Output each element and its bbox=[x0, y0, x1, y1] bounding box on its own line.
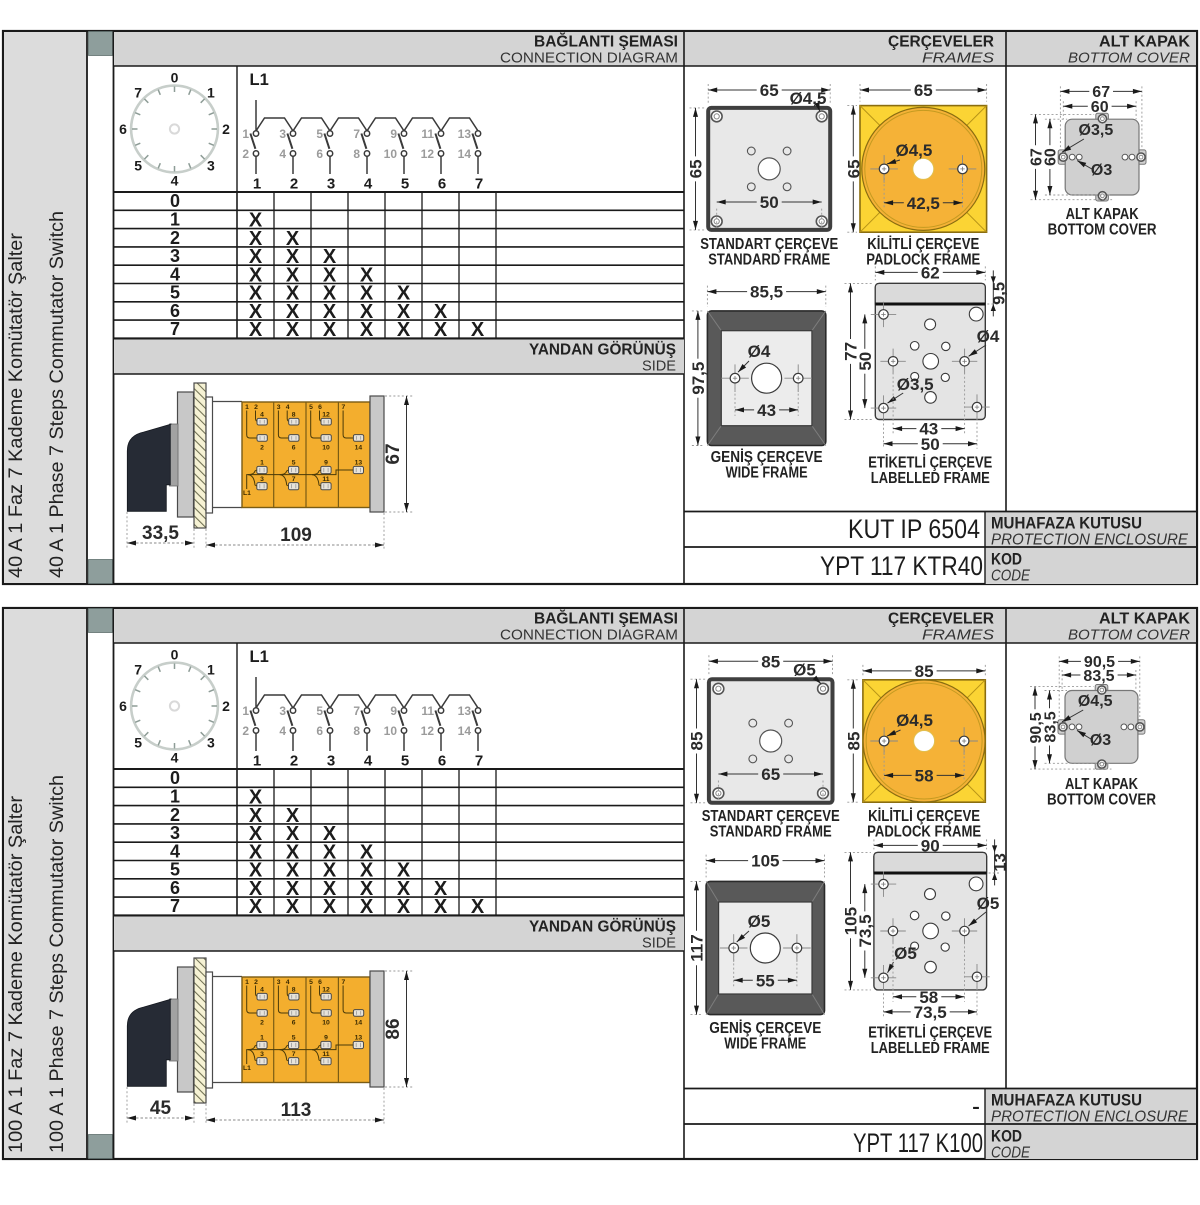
svg-text:65: 65 bbox=[844, 159, 863, 178]
svg-text:2: 2 bbox=[260, 1020, 264, 1027]
svg-text:Ø3: Ø3 bbox=[1090, 732, 1111, 749]
svg-text:1: 1 bbox=[245, 979, 249, 986]
svg-text:STANDARD FRAME: STANDARD FRAME bbox=[708, 252, 830, 269]
svg-text:1: 1 bbox=[170, 786, 180, 806]
svg-text:WIDE FRAME: WIDE FRAME bbox=[724, 1036, 806, 1053]
svg-text:L1: L1 bbox=[243, 1065, 251, 1072]
svg-text:3: 3 bbox=[327, 753, 335, 770]
svg-text:2: 2 bbox=[222, 121, 230, 137]
svg-text:5: 5 bbox=[401, 176, 409, 193]
svg-text:1: 1 bbox=[207, 662, 215, 678]
svg-text:4: 4 bbox=[279, 147, 286, 161]
svg-text:65: 65 bbox=[760, 81, 779, 100]
svg-text:11: 11 bbox=[322, 476, 329, 483]
svg-text:60: 60 bbox=[1091, 99, 1109, 116]
svg-text:2: 2 bbox=[290, 753, 298, 770]
svg-text:L1: L1 bbox=[243, 490, 251, 497]
svg-text:4: 4 bbox=[170, 841, 180, 861]
svg-text:BOTTOM COVER: BOTTOM COVER bbox=[1068, 627, 1190, 644]
svg-text:2: 2 bbox=[242, 724, 249, 738]
svg-text:8: 8 bbox=[353, 147, 360, 161]
svg-text:6: 6 bbox=[316, 724, 323, 738]
svg-text:4: 4 bbox=[171, 173, 179, 189]
svg-text:3: 3 bbox=[207, 734, 215, 750]
svg-text:GENİŞ ÇERÇEVE: GENİŞ ÇERÇEVE bbox=[711, 449, 823, 466]
svg-text:6: 6 bbox=[170, 301, 180, 321]
svg-text:1: 1 bbox=[253, 176, 261, 193]
svg-text:STANDARD FRAME: STANDARD FRAME bbox=[710, 824, 832, 841]
svg-text:Ø3,5: Ø3,5 bbox=[1079, 122, 1114, 139]
svg-text:SIDE: SIDE bbox=[642, 358, 676, 375]
svg-text:40 A 1 Faz 7 Kademe Komütatör: 40 A 1 Faz 7 Kademe Komütatör Şalter bbox=[5, 232, 27, 578]
svg-text:13: 13 bbox=[355, 460, 363, 467]
svg-text:YANDAN GÖRÜNÜŞ: YANDAN GÖRÜNÜŞ bbox=[529, 917, 676, 936]
svg-text:7: 7 bbox=[292, 476, 296, 483]
svg-text:7: 7 bbox=[292, 1051, 296, 1058]
svg-text:3: 3 bbox=[279, 704, 286, 718]
svg-text:1: 1 bbox=[242, 704, 249, 718]
svg-text:5: 5 bbox=[134, 157, 142, 173]
svg-text:2: 2 bbox=[170, 805, 180, 825]
svg-text:PROTECTION ENCLOSURE: PROTECTION ENCLOSURE bbox=[991, 532, 1188, 549]
svg-text:CODE: CODE bbox=[991, 1145, 1030, 1162]
svg-text:65: 65 bbox=[687, 159, 706, 178]
svg-text:-: - bbox=[972, 1091, 980, 1121]
svg-text:3: 3 bbox=[277, 979, 281, 986]
svg-text:BAĞLANTI ŞEMASI: BAĞLANTI ŞEMASI bbox=[534, 610, 678, 628]
svg-text:100 A 1 Faz 7 Kademe Komütatör: 100 A 1 Faz 7 Kademe Komütatör Şalter bbox=[5, 795, 27, 1153]
svg-text:STANDART ÇERÇEVE: STANDART ÇERÇEVE bbox=[702, 808, 840, 825]
svg-text:6: 6 bbox=[438, 176, 446, 193]
svg-text:50: 50 bbox=[921, 435, 940, 454]
svg-text:6: 6 bbox=[170, 878, 180, 898]
svg-text:11: 11 bbox=[421, 704, 434, 718]
svg-text:CONNECTION DIAGRAM: CONNECTION DIAGRAM bbox=[500, 627, 678, 644]
svg-text:3: 3 bbox=[260, 476, 264, 483]
svg-text:117: 117 bbox=[688, 934, 707, 961]
svg-text:12: 12 bbox=[322, 412, 330, 419]
svg-text:5: 5 bbox=[316, 127, 323, 141]
svg-text:ETİKETLİ ÇERÇEVE: ETİKETLİ ÇERÇEVE bbox=[868, 1025, 992, 1042]
svg-text:1: 1 bbox=[253, 753, 261, 770]
svg-text:85: 85 bbox=[688, 732, 707, 751]
svg-text:43: 43 bbox=[757, 401, 776, 420]
svg-text:MUHAFAZA KUTUSU: MUHAFAZA KUTUSU bbox=[991, 1092, 1142, 1110]
svg-text:109: 109 bbox=[280, 525, 312, 546]
svg-text:Ø5: Ø5 bbox=[793, 660, 816, 679]
svg-text:13: 13 bbox=[355, 1035, 363, 1042]
svg-text:KİLİTLİ ÇERÇEVE: KİLİTLİ ÇERÇEVE bbox=[868, 808, 980, 825]
svg-text:7: 7 bbox=[353, 704, 360, 718]
svg-text:45: 45 bbox=[150, 1098, 172, 1119]
svg-text:5: 5 bbox=[401, 753, 409, 770]
svg-text:5: 5 bbox=[309, 404, 313, 411]
svg-text:2: 2 bbox=[170, 228, 180, 248]
svg-text:6: 6 bbox=[119, 698, 127, 714]
svg-text:8: 8 bbox=[353, 724, 360, 738]
svg-text:7: 7 bbox=[342, 979, 346, 986]
svg-text:14: 14 bbox=[355, 445, 363, 452]
svg-text:GENİŞ ÇERÇEVE: GENİŞ ÇERÇEVE bbox=[709, 1020, 821, 1037]
svg-text:12: 12 bbox=[322, 987, 330, 994]
svg-text:5: 5 bbox=[309, 979, 313, 986]
svg-text:8: 8 bbox=[292, 987, 296, 994]
svg-text:62: 62 bbox=[921, 264, 940, 283]
svg-text:KİLİTLİ ÇERÇEVE: KİLİTLİ ÇERÇEVE bbox=[867, 236, 979, 253]
svg-text:14: 14 bbox=[458, 724, 472, 738]
svg-text:100 A 1 Phase 7 Steps Commutat: 100 A 1 Phase 7 Steps Commutator Switch bbox=[46, 775, 68, 1153]
svg-text:85,5: 85,5 bbox=[750, 283, 783, 302]
svg-text:1: 1 bbox=[207, 85, 215, 101]
svg-text:86: 86 bbox=[383, 1018, 404, 1039]
svg-text:113: 113 bbox=[281, 1100, 312, 1121]
svg-text:Ø3,5: Ø3,5 bbox=[897, 375, 934, 394]
svg-text:0: 0 bbox=[171, 70, 179, 86]
svg-text:3: 3 bbox=[327, 176, 335, 193]
svg-text:2: 2 bbox=[254, 979, 258, 986]
svg-text:1: 1 bbox=[260, 1035, 264, 1042]
svg-text:ALT KAPAK: ALT KAPAK bbox=[1099, 34, 1191, 51]
svg-text:0: 0 bbox=[171, 647, 179, 663]
svg-text:10: 10 bbox=[384, 724, 398, 738]
svg-text:83,5: 83,5 bbox=[1042, 711, 1059, 742]
svg-text:13: 13 bbox=[458, 127, 472, 141]
svg-text:YPT 117 K100: YPT 117 K100 bbox=[853, 1128, 983, 1158]
svg-text:2: 2 bbox=[260, 445, 264, 452]
svg-text:2: 2 bbox=[254, 404, 258, 411]
svg-text:ALT KAPAK: ALT KAPAK bbox=[1065, 776, 1139, 793]
svg-text:13: 13 bbox=[992, 853, 1010, 871]
svg-text:9,5: 9,5 bbox=[990, 282, 1008, 305]
svg-text:YPT 117 KTR40: YPT 117 KTR40 bbox=[820, 551, 983, 581]
svg-text:10: 10 bbox=[322, 445, 330, 452]
svg-text:7: 7 bbox=[170, 319, 180, 339]
svg-text:6: 6 bbox=[438, 753, 446, 770]
svg-text:LABELLED FRAME: LABELLED FRAME bbox=[871, 470, 990, 487]
svg-text:4: 4 bbox=[260, 987, 264, 994]
svg-text:73,5: 73,5 bbox=[856, 914, 875, 947]
svg-text:6: 6 bbox=[318, 979, 322, 986]
svg-text:6: 6 bbox=[119, 121, 127, 137]
svg-text:1: 1 bbox=[260, 460, 264, 467]
svg-text:85: 85 bbox=[761, 652, 780, 671]
svg-text:PROTECTION ENCLOSURE: PROTECTION ENCLOSURE bbox=[991, 1109, 1188, 1126]
svg-text:4: 4 bbox=[170, 264, 180, 284]
svg-text:9: 9 bbox=[324, 460, 328, 467]
svg-text:0: 0 bbox=[170, 191, 180, 211]
svg-text:3: 3 bbox=[207, 157, 215, 173]
svg-text:KOD: KOD bbox=[991, 551, 1022, 569]
svg-text:3: 3 bbox=[279, 127, 286, 141]
svg-text:2: 2 bbox=[222, 698, 230, 714]
svg-text:MUHAFAZA KUTUSU: MUHAFAZA KUTUSU bbox=[991, 515, 1142, 533]
svg-text:Ø4,5: Ø4,5 bbox=[895, 141, 932, 160]
svg-text:11: 11 bbox=[421, 127, 434, 141]
svg-text:14: 14 bbox=[355, 1020, 363, 1027]
svg-text:0: 0 bbox=[170, 768, 180, 788]
svg-text:Ø4: Ø4 bbox=[977, 327, 1000, 346]
svg-text:50: 50 bbox=[760, 193, 779, 212]
svg-text:14: 14 bbox=[458, 147, 472, 161]
svg-text:Ø4,5: Ø4,5 bbox=[1078, 693, 1113, 710]
svg-text:10: 10 bbox=[384, 147, 398, 161]
svg-text:65: 65 bbox=[761, 765, 780, 784]
svg-text:6: 6 bbox=[316, 147, 323, 161]
svg-text:FRAMES: FRAMES bbox=[922, 627, 994, 644]
svg-text:BOTTOM COVER: BOTTOM COVER bbox=[1047, 792, 1156, 809]
svg-text:4: 4 bbox=[286, 404, 290, 411]
svg-text:6: 6 bbox=[318, 404, 322, 411]
svg-text:67: 67 bbox=[383, 443, 404, 464]
svg-text:Ø4,5: Ø4,5 bbox=[790, 89, 827, 108]
svg-text:3: 3 bbox=[260, 1051, 264, 1058]
svg-text:55: 55 bbox=[756, 971, 775, 990]
svg-text:L1: L1 bbox=[250, 71, 269, 89]
svg-text:BOTTOM COVER: BOTTOM COVER bbox=[1048, 222, 1157, 239]
svg-text:WIDE FRAME: WIDE FRAME bbox=[726, 465, 808, 482]
svg-text:CONNECTION DIAGRAM: CONNECTION DIAGRAM bbox=[500, 50, 678, 67]
svg-text:97,5: 97,5 bbox=[689, 362, 708, 395]
svg-text:7: 7 bbox=[134, 662, 142, 678]
svg-text:Ø4,5: Ø4,5 bbox=[896, 711, 933, 730]
svg-text:1: 1 bbox=[242, 127, 249, 141]
svg-text:85: 85 bbox=[915, 662, 934, 681]
svg-text:SIDE: SIDE bbox=[642, 935, 676, 952]
svg-text:1: 1 bbox=[245, 404, 249, 411]
svg-text:5: 5 bbox=[134, 734, 142, 750]
svg-text:9: 9 bbox=[390, 704, 397, 718]
svg-text:7: 7 bbox=[342, 404, 346, 411]
svg-text:Ø3: Ø3 bbox=[1091, 162, 1112, 179]
svg-text:4: 4 bbox=[364, 753, 373, 770]
svg-text:5: 5 bbox=[292, 460, 296, 467]
svg-text:10: 10 bbox=[322, 1020, 330, 1027]
svg-text:5: 5 bbox=[170, 283, 180, 303]
svg-text:KUT IP 6504: KUT IP 6504 bbox=[848, 514, 980, 544]
svg-text:7: 7 bbox=[353, 127, 360, 141]
svg-text:3: 3 bbox=[170, 823, 180, 843]
svg-text:CODE: CODE bbox=[991, 568, 1030, 585]
svg-text:42,5: 42,5 bbox=[907, 194, 940, 213]
svg-text:5: 5 bbox=[292, 1035, 296, 1042]
svg-text:2: 2 bbox=[290, 176, 298, 193]
svg-text:50: 50 bbox=[856, 352, 875, 371]
svg-text:FRAMES: FRAMES bbox=[922, 50, 994, 67]
svg-text:4: 4 bbox=[171, 750, 179, 766]
svg-text:83,5: 83,5 bbox=[1083, 668, 1114, 685]
svg-text:13: 13 bbox=[458, 704, 472, 718]
svg-text:ALT KAPAK: ALT KAPAK bbox=[1066, 206, 1140, 223]
svg-text:ÇERÇEVELER: ÇERÇEVELER bbox=[888, 34, 994, 51]
svg-text:7: 7 bbox=[475, 753, 483, 770]
svg-text:3: 3 bbox=[277, 404, 281, 411]
svg-text:8: 8 bbox=[292, 412, 296, 419]
svg-text:7: 7 bbox=[475, 176, 483, 193]
svg-text:60: 60 bbox=[1043, 148, 1060, 166]
svg-text:9: 9 bbox=[390, 127, 397, 141]
svg-text:LABELLED FRAME: LABELLED FRAME bbox=[871, 1040, 990, 1057]
svg-text:5: 5 bbox=[170, 860, 180, 880]
svg-text:40 A 1 Phase 7 Steps Commutato: 40 A 1 Phase 7 Steps Commutator Switch bbox=[46, 211, 68, 578]
svg-text:7: 7 bbox=[134, 85, 142, 101]
svg-text:BOTTOM COVER: BOTTOM COVER bbox=[1068, 50, 1190, 67]
svg-text:BAĞLANTI ŞEMASI: BAĞLANTI ŞEMASI bbox=[534, 33, 678, 51]
svg-text:Ø4: Ø4 bbox=[748, 342, 771, 361]
svg-text:33,5: 33,5 bbox=[142, 523, 179, 544]
svg-text:7: 7 bbox=[170, 896, 180, 916]
svg-text:12: 12 bbox=[421, 724, 435, 738]
svg-text:4: 4 bbox=[364, 176, 373, 193]
svg-text:9: 9 bbox=[324, 1035, 328, 1042]
svg-text:3: 3 bbox=[170, 246, 180, 266]
svg-text:4: 4 bbox=[286, 979, 290, 986]
svg-text:85: 85 bbox=[844, 732, 863, 751]
svg-text:2: 2 bbox=[242, 147, 249, 161]
svg-text:Ø5: Ø5 bbox=[748, 912, 771, 931]
svg-text:6: 6 bbox=[292, 1020, 296, 1027]
svg-text:5: 5 bbox=[316, 704, 323, 718]
svg-text:STANDART ÇERÇEVE: STANDART ÇERÇEVE bbox=[700, 236, 838, 253]
svg-text:ALT KAPAK: ALT KAPAK bbox=[1099, 611, 1191, 628]
svg-text:Ø5: Ø5 bbox=[894, 944, 917, 963]
svg-text:YANDAN GÖRÜNÜŞ: YANDAN GÖRÜNÜŞ bbox=[529, 340, 676, 359]
svg-text:ÇERÇEVELER: ÇERÇEVELER bbox=[888, 611, 994, 628]
svg-text:65: 65 bbox=[914, 81, 933, 100]
svg-text:KOD: KOD bbox=[991, 1128, 1022, 1146]
svg-text:58: 58 bbox=[915, 767, 934, 786]
svg-text:73,5: 73,5 bbox=[914, 1003, 947, 1022]
svg-text:105: 105 bbox=[751, 852, 779, 871]
svg-text:L1: L1 bbox=[250, 648, 269, 666]
svg-text:11: 11 bbox=[322, 1051, 329, 1058]
svg-text:1: 1 bbox=[170, 210, 180, 230]
svg-text:6: 6 bbox=[292, 445, 296, 452]
svg-text:ETİKETLİ ÇERÇEVE: ETİKETLİ ÇERÇEVE bbox=[868, 455, 992, 472]
svg-text:90: 90 bbox=[921, 837, 940, 856]
svg-text:4: 4 bbox=[260, 412, 264, 419]
svg-text:Ø5: Ø5 bbox=[977, 894, 1000, 913]
svg-text:12: 12 bbox=[421, 147, 435, 161]
svg-text:4: 4 bbox=[279, 724, 286, 738]
